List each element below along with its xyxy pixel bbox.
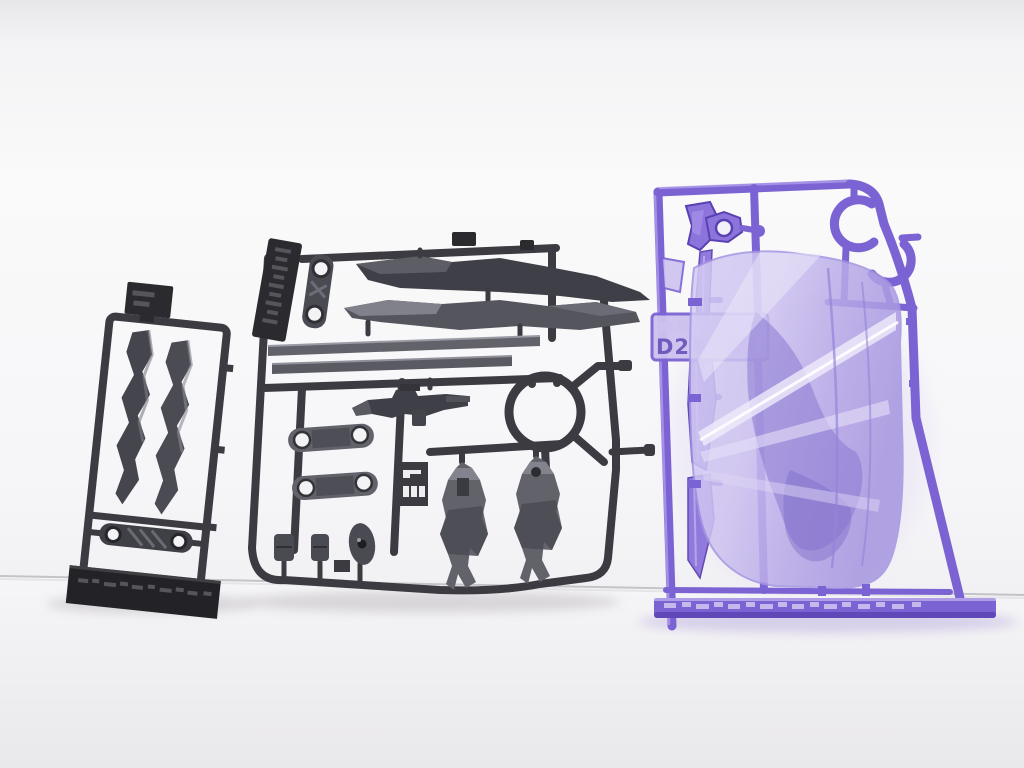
purple-bottom-bar	[654, 598, 996, 618]
effect-sheet-part	[688, 251, 903, 596]
photo-of-model-kit-sprues: D2	[0, 0, 1024, 768]
slotted-number-plate	[398, 462, 428, 506]
photo-stage: D2	[0, 0, 1024, 768]
gate-label-d2: D2	[656, 335, 690, 359]
clear-wedge-part	[662, 258, 684, 292]
